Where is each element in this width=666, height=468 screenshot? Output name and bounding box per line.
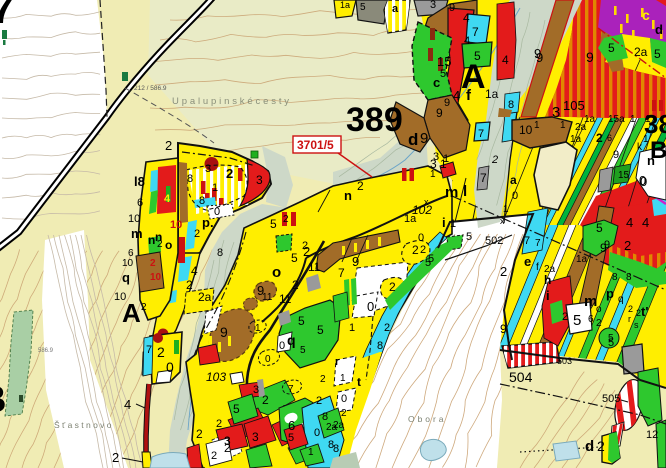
svg-text:8: 8 <box>377 340 383 352</box>
svg-text:2: 2 <box>224 441 231 455</box>
svg-text:11: 11 <box>279 292 292 306</box>
svg-text:3: 3 <box>256 173 263 187</box>
svg-text:2a: 2a <box>634 45 648 59</box>
svg-text:1: 1 <box>255 323 261 334</box>
svg-text:p.: p. <box>202 215 214 230</box>
svg-text:0: 0 <box>265 354 271 365</box>
svg-text:5: 5 <box>440 68 446 80</box>
svg-text:h: h <box>544 273 551 287</box>
svg-text:m: m <box>131 226 143 241</box>
svg-text:o: o <box>165 238 172 252</box>
svg-text:c: c <box>642 7 650 23</box>
svg-text:6: 6 <box>288 418 295 433</box>
svg-text:504: 504 <box>509 369 533 385</box>
svg-text:8: 8 <box>612 272 618 283</box>
svg-text:5: 5 <box>596 221 603 235</box>
svg-text:2: 2 <box>628 304 633 314</box>
svg-text:103: 103 <box>206 370 226 384</box>
svg-text:1a: 1a <box>576 254 588 265</box>
svg-text:5: 5 <box>428 253 434 265</box>
svg-text:10: 10 <box>150 272 162 283</box>
svg-text:9: 9 <box>536 50 543 65</box>
svg-text:n: n <box>647 153 655 168</box>
svg-text:8: 8 <box>199 195 205 207</box>
svg-text:l8: l8 <box>134 174 145 189</box>
svg-text:15: 15 <box>437 54 451 69</box>
svg-text:c: c <box>433 75 440 90</box>
svg-text:3: 3 <box>552 104 560 121</box>
svg-text:10: 10 <box>122 258 134 269</box>
svg-text:0: 0 <box>341 393 347 405</box>
svg-text:3: 3 <box>252 430 259 444</box>
svg-text:9: 9 <box>500 322 507 336</box>
svg-text:2: 2 <box>165 138 172 153</box>
svg-text:1a: 1a <box>340 0 350 10</box>
svg-text:212 / 586.9: 212 / 586.9 <box>134 85 167 92</box>
svg-text:2: 2 <box>186 278 193 292</box>
svg-text:2: 2 <box>283 214 289 225</box>
svg-text:7: 7 <box>0 0 14 32</box>
svg-text:8: 8 <box>217 247 223 259</box>
svg-text:2: 2 <box>412 243 419 257</box>
svg-text:1: 1 <box>340 373 346 384</box>
svg-text:2: 2 <box>194 228 200 240</box>
svg-text:m: m <box>445 184 458 201</box>
svg-text:B: B <box>0 379 6 421</box>
svg-text:i: i <box>442 215 446 230</box>
svg-text:3 1: 3 1 <box>430 157 447 171</box>
svg-text:1a: 1a <box>404 213 417 225</box>
svg-text:5: 5 <box>288 432 294 444</box>
svg-text:10: 10 <box>170 219 182 231</box>
svg-text:2: 2 <box>292 278 299 292</box>
svg-text:5: 5 <box>300 345 306 356</box>
svg-text:2: 2 <box>216 418 222 430</box>
svg-text:0: 0 <box>418 232 424 244</box>
svg-text:U p a l u p i n s k é c: U p a l u p i n s k é c e s t y <box>172 96 289 107</box>
svg-text:9: 9 <box>220 324 228 340</box>
svg-text:i: i <box>546 288 550 303</box>
svg-text:2: 2 <box>500 264 507 279</box>
svg-text:2: 2 <box>112 450 119 465</box>
svg-text:4: 4 <box>124 397 131 412</box>
svg-text:2: 2 <box>196 427 203 441</box>
svg-text:9: 9 <box>613 149 619 161</box>
svg-text:x: x <box>424 197 429 207</box>
svg-text:10: 10 <box>128 213 140 225</box>
svg-text:5: 5 <box>608 333 614 344</box>
svg-text:9: 9 <box>586 49 594 65</box>
svg-text:11: 11 <box>308 260 321 274</box>
svg-text:9: 9 <box>352 254 359 269</box>
svg-text:4: 4 <box>164 193 171 205</box>
svg-text:5: 5 <box>474 49 481 63</box>
svg-text:0: 0 <box>512 190 518 202</box>
svg-text:1a: 1a <box>584 114 596 125</box>
svg-text:5: 5 <box>317 323 324 337</box>
svg-text:e: e <box>524 254 531 269</box>
svg-text:1: 1 <box>349 322 355 334</box>
svg-text:d: d <box>408 130 418 149</box>
svg-text:2: 2 <box>596 131 603 145</box>
svg-text:2: 2 <box>624 238 631 253</box>
svg-text:5: 5 <box>573 312 581 329</box>
svg-text:502: 502 <box>485 235 503 247</box>
svg-text:5: 5 <box>270 217 277 231</box>
svg-text:2: 2 <box>597 438 605 454</box>
svg-text:l: l <box>463 183 467 200</box>
svg-text:105: 105 <box>563 98 585 113</box>
svg-text:8: 8 <box>508 99 514 111</box>
svg-text:8: 8 <box>626 272 632 283</box>
svg-text:1: 1 <box>643 134 649 145</box>
svg-text:1: 1 <box>212 182 218 194</box>
svg-text:9: 9 <box>420 130 428 147</box>
svg-text:3: 3 <box>205 163 211 175</box>
svg-text:2a: 2a <box>198 290 212 304</box>
svg-text:O b o r a: O b o r a <box>408 414 444 424</box>
svg-text:10: 10 <box>114 291 126 303</box>
svg-text:7: 7 <box>478 128 484 140</box>
svg-text:505: 505 <box>602 393 620 405</box>
svg-text:10: 10 <box>519 123 533 137</box>
svg-text:r: r <box>335 356 340 368</box>
svg-text:2: 2 <box>150 258 156 269</box>
svg-text:A: A <box>461 58 486 96</box>
svg-text:a: a <box>510 173 517 187</box>
svg-text:2: 2 <box>384 322 390 334</box>
svg-text:3: 3 <box>253 384 259 396</box>
svg-text:o: o <box>272 264 281 281</box>
svg-text:4: 4 <box>642 215 649 230</box>
svg-text:d: d <box>585 438 594 455</box>
svg-text:503: 503 <box>557 356 572 366</box>
svg-text:8: 8 <box>328 439 334 451</box>
svg-text:1: 1 <box>503 204 509 215</box>
svg-text:2: 2 <box>141 302 147 313</box>
svg-text:2: 2 <box>302 240 308 252</box>
svg-text:p: p <box>606 286 614 301</box>
svg-text:r: r <box>628 314 631 324</box>
svg-text:9: 9 <box>449 2 455 14</box>
svg-text:5: 5 <box>291 251 298 265</box>
svg-text:2: 2 <box>420 244 426 256</box>
svg-text:15a: 15a <box>608 114 625 125</box>
svg-text:0: 0 <box>214 206 220 218</box>
svg-text:2: 2 <box>596 318 602 329</box>
svg-text:4: 4 <box>463 11 470 25</box>
svg-text:6: 6 <box>607 133 612 143</box>
svg-text:2: 2 <box>389 280 396 294</box>
svg-text:2: 2 <box>341 408 347 419</box>
svg-text:2: 2 <box>491 154 498 166</box>
svg-text:Š ť a s t n o v o: Š ť a s t n o v o <box>54 420 112 430</box>
svg-text:x: x <box>500 216 505 226</box>
svg-text:d: d <box>655 22 663 37</box>
svg-text:15: 15 <box>618 170 630 181</box>
svg-text:9: 9 <box>436 106 443 120</box>
svg-text:1: 1 <box>308 447 314 458</box>
svg-text:2: 2 <box>226 166 233 181</box>
svg-text:s: s <box>634 320 639 330</box>
svg-text:7: 7 <box>472 25 479 39</box>
svg-text:4: 4 <box>453 88 460 103</box>
svg-text:0: 0 <box>314 427 320 439</box>
svg-text:9: 9 <box>444 97 450 109</box>
svg-text:5: 5 <box>608 41 615 55</box>
svg-text:0: 0 <box>279 340 285 352</box>
svg-text:2a: 2a <box>326 422 338 433</box>
svg-text:12: 12 <box>646 429 658 441</box>
svg-text:1: 1 <box>534 120 540 131</box>
svg-text:0: 0 <box>367 299 374 314</box>
svg-text:7: 7 <box>524 235 530 247</box>
svg-text:3: 3 <box>430 0 436 11</box>
svg-text:1: 1 <box>630 114 636 125</box>
svg-text:389: 389 <box>346 101 403 139</box>
svg-text:2: 2 <box>211 450 217 462</box>
svg-text:1: 1 <box>560 120 566 131</box>
svg-text:t': t' <box>641 304 648 319</box>
svg-text:7: 7 <box>146 344 152 356</box>
svg-text:2: 2 <box>562 311 568 323</box>
svg-text:a: a <box>392 3 399 15</box>
svg-text:7: 7 <box>535 238 541 249</box>
svg-text:3701/5: 3701/5 <box>297 138 334 152</box>
svg-text:5: 5 <box>466 231 472 243</box>
svg-text:f: f <box>536 262 539 273</box>
svg-text:9: 9 <box>257 283 264 298</box>
svg-text:7: 7 <box>338 266 345 280</box>
svg-text:n: n <box>148 233 155 247</box>
svg-text:8: 8 <box>187 173 193 185</box>
svg-text:0: 0 <box>166 359 174 375</box>
svg-text:1a: 1a <box>485 87 499 101</box>
svg-text:9: 9 <box>604 239 610 251</box>
svg-text:5: 5 <box>233 402 240 416</box>
svg-text:2: 2 <box>357 179 364 193</box>
svg-text:2: 2 <box>262 393 269 407</box>
svg-text:o: o <box>596 304 602 315</box>
svg-text:t: t <box>357 375 361 389</box>
svg-text:6: 6 <box>137 197 143 209</box>
svg-text:q: q <box>122 270 130 285</box>
svg-text:1: 1 <box>645 114 651 125</box>
svg-text:5: 5 <box>360 2 366 13</box>
svg-text:q: q <box>287 332 296 348</box>
svg-text:2: 2 <box>320 374 326 385</box>
svg-text:0: 0 <box>640 174 647 189</box>
svg-text:2: 2 <box>157 344 165 360</box>
svg-text:7: 7 <box>288 384 294 395</box>
svg-text:1: 1 <box>450 218 456 230</box>
svg-text:1a: 1a <box>570 134 582 145</box>
svg-text:4: 4 <box>464 35 470 47</box>
svg-text:n: n <box>344 188 352 203</box>
svg-text:4: 4 <box>191 264 198 278</box>
svg-text:7: 7 <box>480 171 487 185</box>
svg-text:5: 5 <box>298 314 305 328</box>
svg-text:2: 2 <box>316 395 322 407</box>
svg-text:6: 6 <box>588 314 594 325</box>
svg-text:4: 4 <box>502 53 509 67</box>
svg-text:4: 4 <box>626 215 633 230</box>
svg-text:q: q <box>618 294 624 305</box>
svg-text:n: n <box>155 230 162 244</box>
svg-text:586.9: 586.9 <box>38 348 54 354</box>
svg-text:5: 5 <box>654 47 661 61</box>
